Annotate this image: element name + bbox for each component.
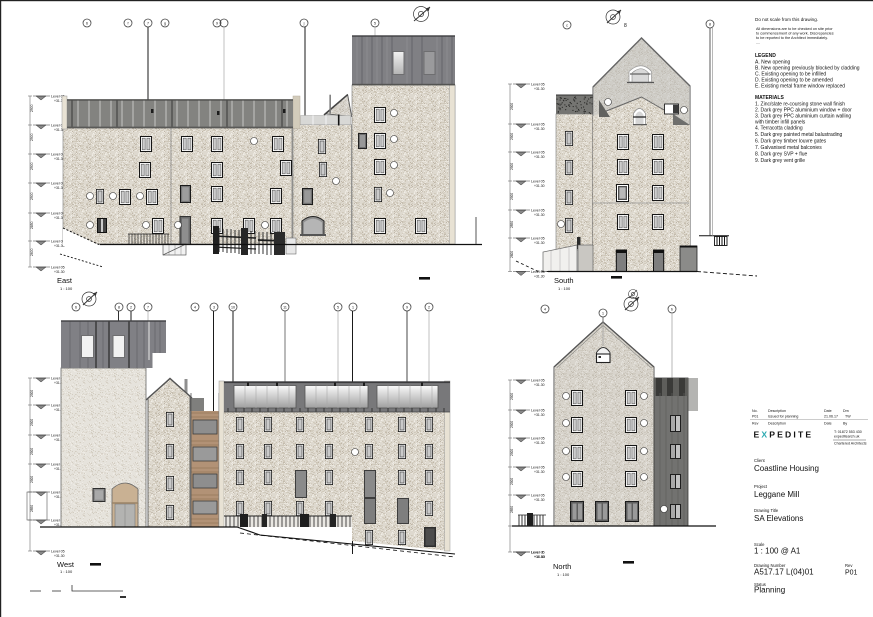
svg-text:2900: 2900 — [510, 393, 514, 400]
svg-text:North: North — [553, 562, 571, 571]
svg-text:South: South — [554, 276, 574, 285]
svg-text:expeditearch.uk: expeditearch.uk — [834, 435, 860, 439]
svg-text:P01: P01 — [845, 570, 858, 577]
svg-text:8: 8 — [118, 305, 120, 309]
svg-text:P01: P01 — [752, 415, 758, 419]
svg-text:No.: No. — [752, 409, 758, 413]
svg-text:1: 1 — [602, 311, 604, 315]
svg-text:Drawing Title: Drawing Title — [754, 508, 779, 513]
svg-text:5: 5 — [337, 305, 339, 309]
svg-text:Date: Date — [824, 409, 832, 413]
svg-text:7: 7 — [147, 305, 149, 309]
svg-text:A517.17 L(04)01: A517.17 L(04)01 — [754, 568, 814, 577]
svg-text:Description: Description — [768, 422, 786, 426]
svg-text:All dimensions are to be check: All dimensions are to be checked on site… — [756, 27, 833, 31]
svg-text:7. Galvanised metal balconies: 7. Galvanised metal balconies — [755, 145, 822, 151]
svg-text:2900: 2900 — [30, 162, 34, 170]
svg-text:1 : 100: 1 : 100 — [558, 286, 571, 291]
svg-text:Client: Client — [754, 458, 766, 463]
svg-text:Level -1: Level -1 — [531, 551, 544, 555]
svg-text:2850: 2850 — [510, 221, 514, 228]
svg-text:Coastline Housing: Coastline Housing — [754, 464, 819, 473]
svg-text:2850: 2850 — [510, 506, 514, 513]
svg-text:EXPEDITE: EXPEDITE — [754, 430, 814, 440]
svg-text:2900: 2900 — [30, 476, 34, 483]
svg-text:5. Dark grey painted metal bal: 5. Dark grey painted metal balustrading — [755, 132, 842, 138]
svg-text:Rev: Rev — [752, 422, 759, 426]
svg-text:7: 7 — [147, 21, 149, 25]
svg-text:9: 9 — [216, 21, 218, 25]
svg-text:4. Terracotta cladding: 4. Terracotta cladding — [755, 126, 803, 132]
svg-text:2900: 2900 — [510, 193, 514, 200]
svg-text:Chartered Architects: Chartered Architects — [834, 442, 867, 446]
svg-text:1 : 100 @ A1: 1 : 100 @ A1 — [754, 547, 801, 556]
svg-text:c: c — [566, 23, 568, 27]
svg-text:8. Dark grey SVP + flue: 8. Dark grey SVP + flue — [755, 152, 808, 158]
svg-text:2900: 2900 — [510, 478, 514, 485]
svg-text:f: f — [128, 21, 129, 25]
svg-text:1 : 100: 1 : 100 — [60, 569, 73, 574]
svg-text:4: 4 — [544, 307, 546, 311]
svg-text:Planning: Planning — [754, 586, 785, 595]
svg-text:MATERIALS: MATERIALS — [755, 95, 784, 101]
svg-text:4: 4 — [194, 305, 196, 309]
svg-text:21.06.17: 21.06.17 — [824, 415, 838, 419]
svg-text:2900: 2900 — [510, 449, 514, 456]
svg-text:2900: 2900 — [30, 448, 34, 455]
svg-text:West: West — [57, 560, 75, 569]
svg-text:2600: 2600 — [30, 248, 34, 256]
svg-text:Date: Date — [824, 422, 832, 426]
svg-text:2900: 2900 — [510, 163, 514, 170]
svg-text:LEGEND: LEGEND — [755, 53, 776, 59]
svg-text:2900: 2900 — [510, 421, 514, 428]
svg-text:Description: Description — [768, 409, 786, 413]
svg-text:6: 6 — [75, 305, 77, 309]
svg-text:2900: 2900 — [30, 419, 34, 426]
svg-text:Leggane Mill: Leggane Mill — [754, 490, 800, 499]
svg-text:Drn: Drn — [843, 409, 849, 413]
svg-text:8: 8 — [709, 22, 711, 26]
svg-text:10: 10 — [231, 305, 235, 309]
svg-text:5: 5 — [374, 21, 376, 25]
svg-text:1 : 100: 1 : 100 — [60, 286, 73, 291]
svg-text:TW: TW — [845, 415, 851, 419]
svg-text:to commencement of any work. D: to commencement of any work. Discrepanci… — [756, 32, 834, 36]
svg-text:Do not scale from this drawing: Do not scale from this drawing. — [755, 17, 818, 22]
svg-text:Issued for planning: Issued for planning — [768, 415, 798, 419]
svg-text:6: 6 — [86, 21, 88, 25]
svg-text:9. Dark grey vent grille: 9. Dark grey vent grille — [755, 158, 805, 164]
svg-text:8: 8 — [624, 23, 627, 29]
svg-text:By: By — [843, 422, 847, 426]
svg-text:1 : 100: 1 : 100 — [557, 572, 570, 577]
svg-text:SA Elevations: SA Elevations — [754, 514, 803, 523]
svg-text:2: 2 — [130, 305, 132, 309]
svg-text:2850: 2850 — [30, 221, 34, 229]
svg-text:....: .... — [756, 41, 760, 45]
svg-text:2900: 2900 — [30, 192, 34, 200]
svg-text:2600: 2600 — [510, 251, 514, 258]
svg-text:E. Existing metal frame window: E. Existing metal frame window replaced — [755, 84, 845, 90]
svg-text:2900: 2900 — [30, 104, 34, 112]
svg-text:3: 3 — [213, 305, 215, 309]
svg-text:+10.60: +10.60 — [534, 555, 545, 559]
svg-text:Rev: Rev — [845, 563, 853, 568]
svg-text:2900: 2900 — [30, 390, 34, 397]
svg-text:Project: Project — [754, 484, 768, 489]
svg-text:to be reported to the Architec: to be reported to the Architect immediat… — [756, 36, 828, 40]
svg-text:2850: 2850 — [30, 505, 34, 512]
svg-text:6. Dark grey timber louvre gat: 6. Dark grey timber louvre gates — [755, 139, 827, 145]
svg-text:9: 9 — [406, 305, 408, 309]
svg-text:j: j — [303, 21, 305, 25]
svg-text:2900: 2900 — [30, 133, 34, 141]
svg-text:2900: 2900 — [510, 103, 514, 110]
svg-text:T: 01872 553 430: T: 01872 553 430 — [834, 430, 862, 434]
svg-text:g: g — [164, 21, 166, 25]
svg-text:11: 11 — [283, 305, 287, 309]
svg-text:b: b — [671, 307, 673, 311]
svg-text:2900: 2900 — [510, 133, 514, 140]
svg-text:1: 1 — [352, 305, 354, 309]
svg-text:2: 2 — [428, 305, 430, 309]
svg-text:East: East — [57, 276, 73, 285]
